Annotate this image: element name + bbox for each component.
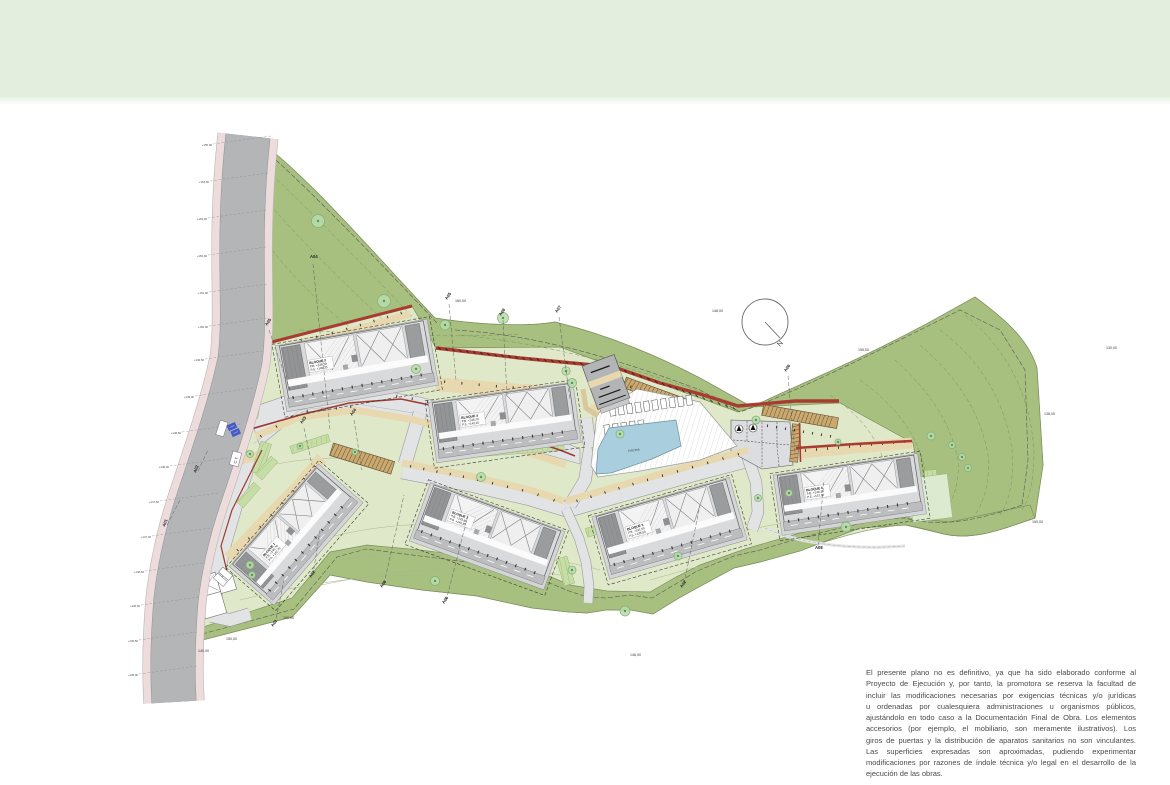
- svg-text:A08: A08: [815, 545, 823, 550]
- svg-text:+152,00: +152,00: [197, 254, 208, 258]
- svg-text:146,00: 146,00: [630, 653, 641, 657]
- svg-text:130,00: 130,00: [1106, 346, 1117, 350]
- svg-text:+155,00: +155,00: [202, 143, 213, 147]
- svg-text:A06: A06: [441, 595, 450, 605]
- svg-text:+146,50: +146,50: [134, 570, 145, 574]
- svg-text:+154,00: +154,00: [199, 180, 210, 184]
- svg-text:+145,50: +145,50: [128, 639, 139, 643]
- svg-text:140,00: 140,00: [198, 649, 209, 653]
- svg-text:N: N: [776, 340, 785, 348]
- svg-text:+147,50: +147,50: [149, 500, 160, 504]
- svg-text:155,00: 155,00: [858, 348, 869, 352]
- svg-text:+151,00: +151,00: [198, 291, 209, 295]
- svg-text:+149,00: +149,00: [184, 395, 195, 399]
- svg-text:+146,00: +146,00: [130, 604, 141, 608]
- svg-text:+153,00: +153,00: [197, 217, 208, 221]
- svg-text:150,00: 150,00: [283, 616, 294, 620]
- svg-text:A07: A07: [554, 304, 563, 314]
- svg-text:138,00: 138,00: [1044, 412, 1055, 416]
- svg-text:+148,50: +148,50: [171, 431, 182, 435]
- svg-text:A04: A04: [310, 254, 318, 259]
- svg-text:A06: A06: [783, 363, 792, 373]
- svg-text:160,00: 160,00: [455, 299, 466, 303]
- svg-text:+149,50: +149,50: [194, 358, 205, 362]
- svg-text:150,00: 150,00: [1032, 520, 1043, 524]
- svg-text:150,00: 150,00: [226, 637, 237, 641]
- svg-text:+148,00: +148,00: [159, 465, 170, 469]
- svg-text:+147,00: +147,00: [141, 535, 152, 539]
- svg-text:A05: A05: [444, 291, 453, 301]
- svg-text:+150,00: +150,00: [198, 325, 209, 329]
- svg-text:148,00: 148,00: [712, 309, 723, 313]
- svg-text:+145,00: +145,00: [128, 673, 139, 677]
